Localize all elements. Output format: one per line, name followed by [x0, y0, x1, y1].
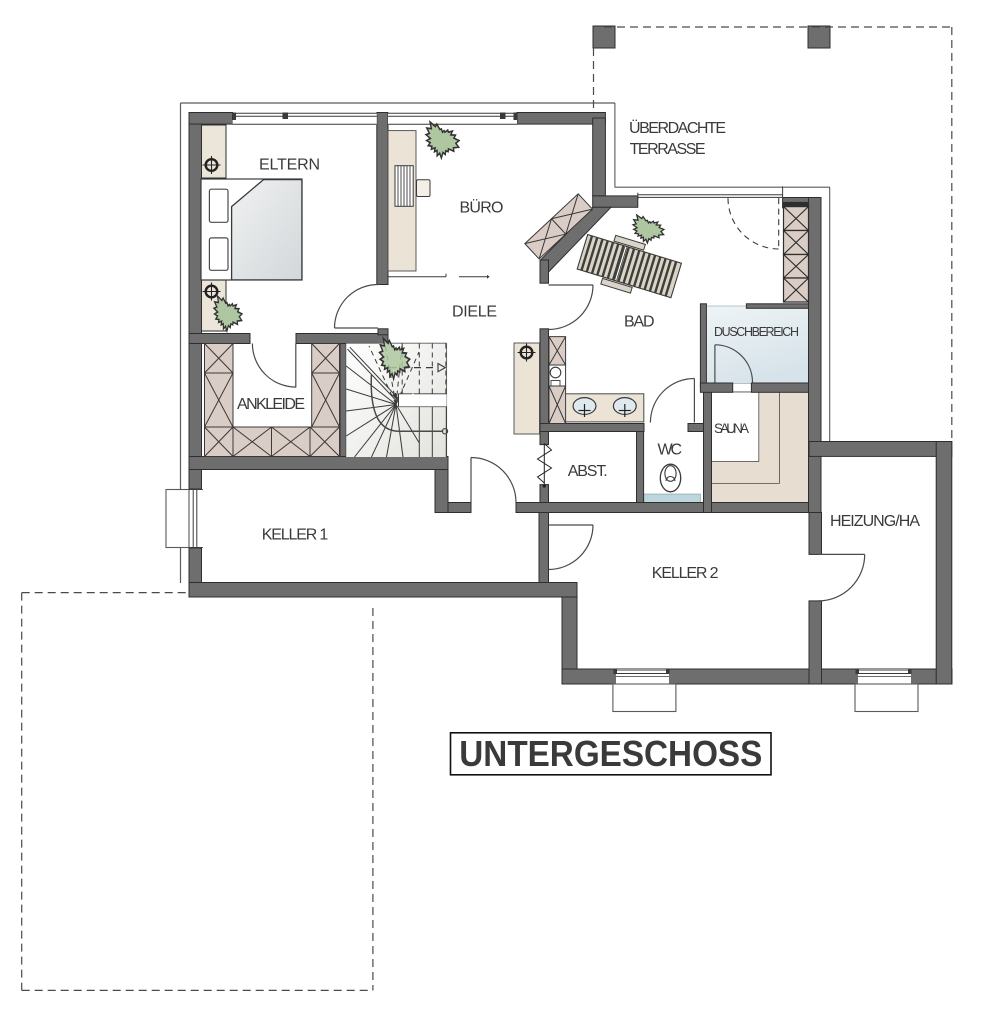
svg-text:BAD: BAD — [624, 314, 655, 331]
svg-text:BÜRO: BÜRO — [460, 199, 504, 217]
svg-text:ABST.: ABST. — [568, 463, 608, 480]
svg-text:ELTERN: ELTERN — [259, 157, 320, 174]
svg-text:KELLER 1: KELLER 1 — [262, 527, 329, 544]
svg-text:ANKLEIDE: ANKLEIDE — [237, 396, 305, 413]
svg-text:SAUNA: SAUNA — [714, 421, 749, 436]
svg-text:UNTERGESCHOSS: UNTERGESCHOSS — [459, 733, 762, 774]
svg-text:DUSCHBEREICH: DUSCHBEREICH — [714, 325, 799, 339]
svg-text:DIELE: DIELE — [452, 304, 497, 321]
svg-text:WC: WC — [658, 442, 683, 459]
svg-text:ÜBERDACHTE: ÜBERDACHTE — [629, 119, 726, 137]
svg-text:HEIZUNG/HA: HEIZUNG/HA — [830, 513, 920, 530]
svg-text:KELLER 2: KELLER 2 — [652, 565, 719, 582]
svg-text:TERRASSE: TERRASSE — [630, 141, 706, 158]
